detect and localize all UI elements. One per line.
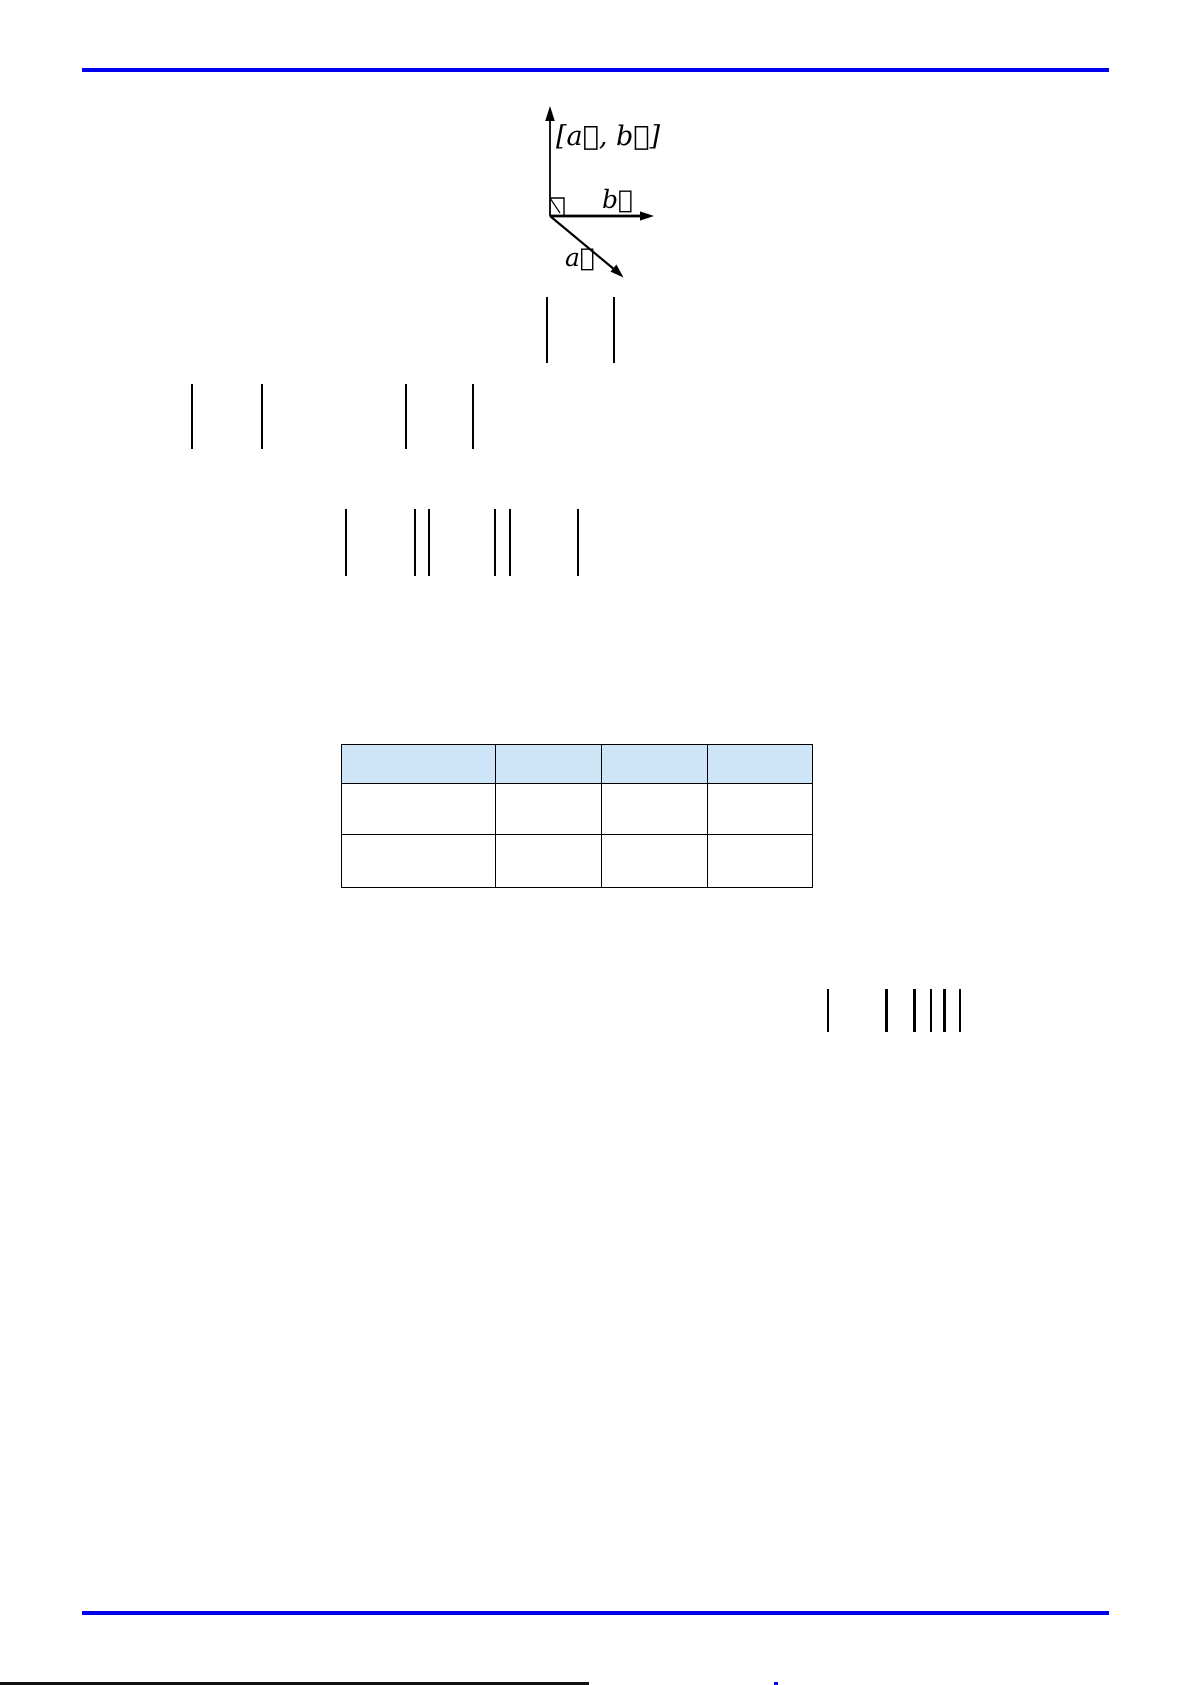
footer-rule xyxy=(82,1611,1109,1615)
table-header-cell xyxy=(496,745,602,784)
table-header-row xyxy=(342,745,813,784)
right-angle-marker-diagonal xyxy=(550,198,560,213)
cross-product-diagram: [a⃗, b⃗] b⃗ a⃗ xyxy=(480,95,680,290)
vector-a-arrowhead-icon xyxy=(611,265,624,278)
table-cell xyxy=(496,784,602,835)
table-row xyxy=(342,835,813,888)
formula-bar-line3 xyxy=(414,509,416,576)
table-header-cell xyxy=(708,745,813,784)
formula-bar-line4 xyxy=(885,989,888,1032)
formula-bar-line4 xyxy=(913,989,916,1032)
formula-bar-line1 xyxy=(613,297,615,363)
cross-product-arrowhead-icon xyxy=(545,106,555,121)
table-cell xyxy=(708,835,813,888)
vector-b-label: b⃗ xyxy=(602,185,633,214)
table-cell xyxy=(342,784,496,835)
formula-bar-line2 xyxy=(261,384,263,449)
formula-bar-line1 xyxy=(546,297,548,363)
formula-bar-line3 xyxy=(509,509,511,576)
formula-bar-line3 xyxy=(428,509,430,576)
formula-bar-line2 xyxy=(405,384,407,449)
formula-bar-line2 xyxy=(472,384,474,449)
vector-b-arrowhead-icon xyxy=(640,211,654,220)
formula-bar-line3 xyxy=(345,509,347,576)
table-cell xyxy=(708,784,813,835)
formula-bar-line2 xyxy=(191,384,193,449)
table-header-cell xyxy=(342,745,496,784)
data-table xyxy=(341,744,813,888)
table-cell xyxy=(602,784,708,835)
table-row xyxy=(342,784,813,835)
cross-product-label: [a⃗, b⃗] xyxy=(556,121,660,152)
formula-bar-line3 xyxy=(494,509,496,576)
document-page: [a⃗, b⃗] b⃗ a⃗ xyxy=(0,0,1191,1685)
formula-bar-line4 xyxy=(959,989,961,1032)
table-cell xyxy=(342,835,496,888)
formula-bar-line3 xyxy=(577,509,579,576)
formula-bar-line4 xyxy=(827,989,829,1032)
vector-a-label: a⃗ xyxy=(565,243,595,272)
table-header-cell xyxy=(602,745,708,784)
formula-bar-line4 xyxy=(930,989,932,1032)
formula-bar-line4 xyxy=(943,989,946,1032)
table-cell xyxy=(496,835,602,888)
header-rule xyxy=(82,68,1109,72)
table-cell xyxy=(602,835,708,888)
